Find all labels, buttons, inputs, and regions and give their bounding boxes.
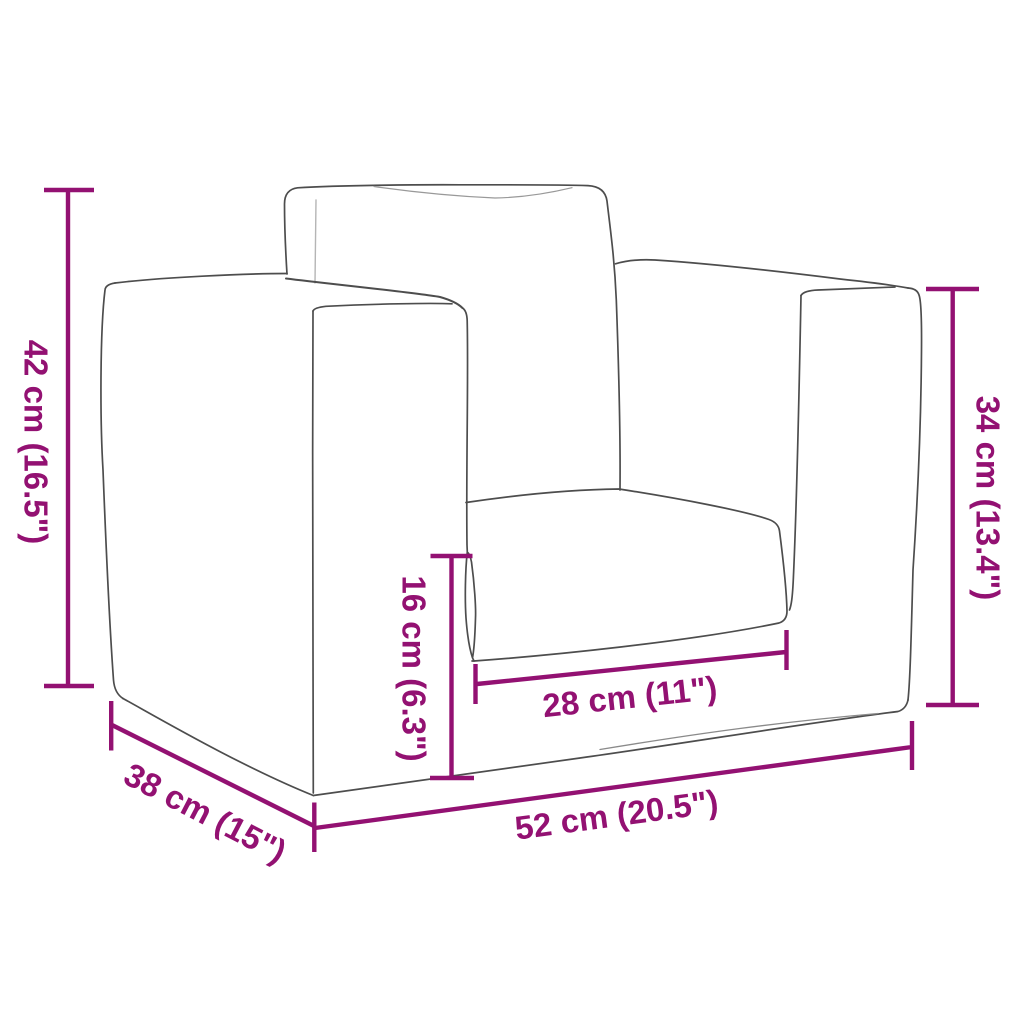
- svg-text:16 cm (6.3"): 16 cm (6.3"): [396, 575, 433, 761]
- svg-text:34 cm (13.4"): 34 cm (13.4"): [970, 396, 1007, 601]
- svg-text:42 cm (16.5"): 42 cm (16.5"): [18, 340, 55, 545]
